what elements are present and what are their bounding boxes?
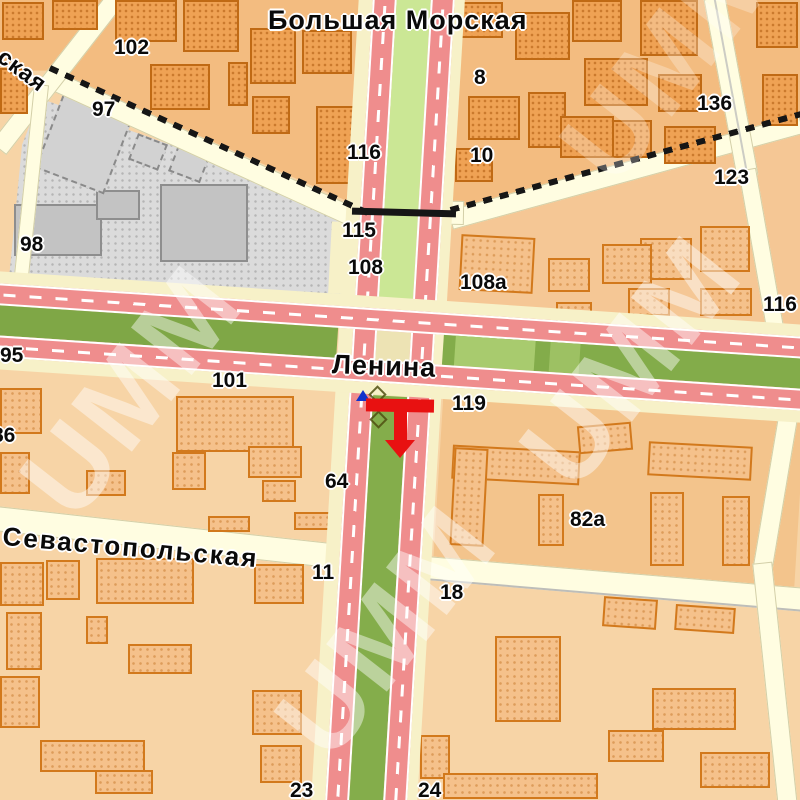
building xyxy=(254,564,304,604)
building xyxy=(495,636,561,722)
street-label-lenina: Ленина xyxy=(332,350,437,383)
building xyxy=(640,0,698,56)
map-canvas[interactable]: UMM UMM UMM UMM Большая Морская Ленина С… xyxy=(0,0,800,800)
building xyxy=(650,492,684,566)
building-number-116-top: 116 xyxy=(347,141,381,164)
building xyxy=(52,0,98,30)
building xyxy=(560,116,614,158)
building xyxy=(658,74,702,112)
building-number-11: 11 xyxy=(312,561,334,584)
building-number-8: 8 xyxy=(474,66,486,89)
building xyxy=(602,244,652,284)
building xyxy=(577,422,633,455)
building xyxy=(0,452,30,494)
building xyxy=(302,30,352,74)
building xyxy=(150,64,210,110)
building xyxy=(468,96,520,140)
building-number-97: 97 xyxy=(92,98,115,121)
building xyxy=(128,644,192,674)
building xyxy=(250,28,296,84)
building xyxy=(674,604,736,634)
building xyxy=(262,480,296,502)
building-number-24: 24 xyxy=(418,779,441,800)
building xyxy=(700,288,752,316)
building xyxy=(0,562,44,606)
building xyxy=(628,288,670,316)
building xyxy=(208,516,250,532)
building xyxy=(172,452,206,490)
building-number-82a: 82а xyxy=(570,508,605,531)
building xyxy=(584,58,648,106)
building xyxy=(248,446,302,478)
building-number-18: 18 xyxy=(440,581,463,604)
building-number-101: 101 xyxy=(212,369,247,392)
building-number-123: 123 xyxy=(714,166,749,189)
building-number-116-right: 116 xyxy=(763,293,797,316)
building xyxy=(722,496,750,566)
building xyxy=(647,441,753,480)
building-number-102: 102 xyxy=(114,36,149,59)
building xyxy=(176,396,294,452)
building xyxy=(443,773,598,799)
building-number-115: 115 xyxy=(342,219,376,242)
building-number-108: 108 xyxy=(348,256,383,279)
building xyxy=(86,470,126,496)
building xyxy=(46,560,80,600)
building xyxy=(700,752,770,788)
building xyxy=(2,2,44,40)
building xyxy=(449,447,488,547)
building-number-86: 86 xyxy=(0,424,15,447)
building xyxy=(95,770,153,794)
marker-arrow-stem xyxy=(394,411,407,441)
building-number-64: 64 xyxy=(325,470,348,493)
building xyxy=(756,2,798,48)
building xyxy=(572,0,622,42)
street-label-bolshaya-morskaya: Большая Морская xyxy=(268,6,528,36)
building xyxy=(252,96,290,134)
building-number-23: 23 xyxy=(290,779,313,800)
building xyxy=(652,688,736,730)
building xyxy=(96,190,140,220)
building xyxy=(608,730,664,762)
building xyxy=(252,690,302,735)
marker-arrow-head-icon xyxy=(385,440,415,458)
building xyxy=(160,184,248,262)
building xyxy=(0,676,40,728)
building xyxy=(228,62,248,106)
building-number-136: 136 xyxy=(697,92,732,115)
building-number-98: 98 xyxy=(20,233,43,256)
building-number-95: 95 xyxy=(0,344,23,367)
building xyxy=(260,745,302,783)
building xyxy=(602,596,658,630)
building-number-108a: 108а xyxy=(460,271,507,294)
building xyxy=(548,258,590,292)
building xyxy=(6,612,42,670)
building xyxy=(86,616,108,644)
building xyxy=(700,226,750,272)
building-number-10: 10 xyxy=(470,144,493,167)
building xyxy=(538,494,564,546)
building xyxy=(183,0,239,52)
building xyxy=(40,740,145,772)
building-number-119: 119 xyxy=(452,392,486,415)
